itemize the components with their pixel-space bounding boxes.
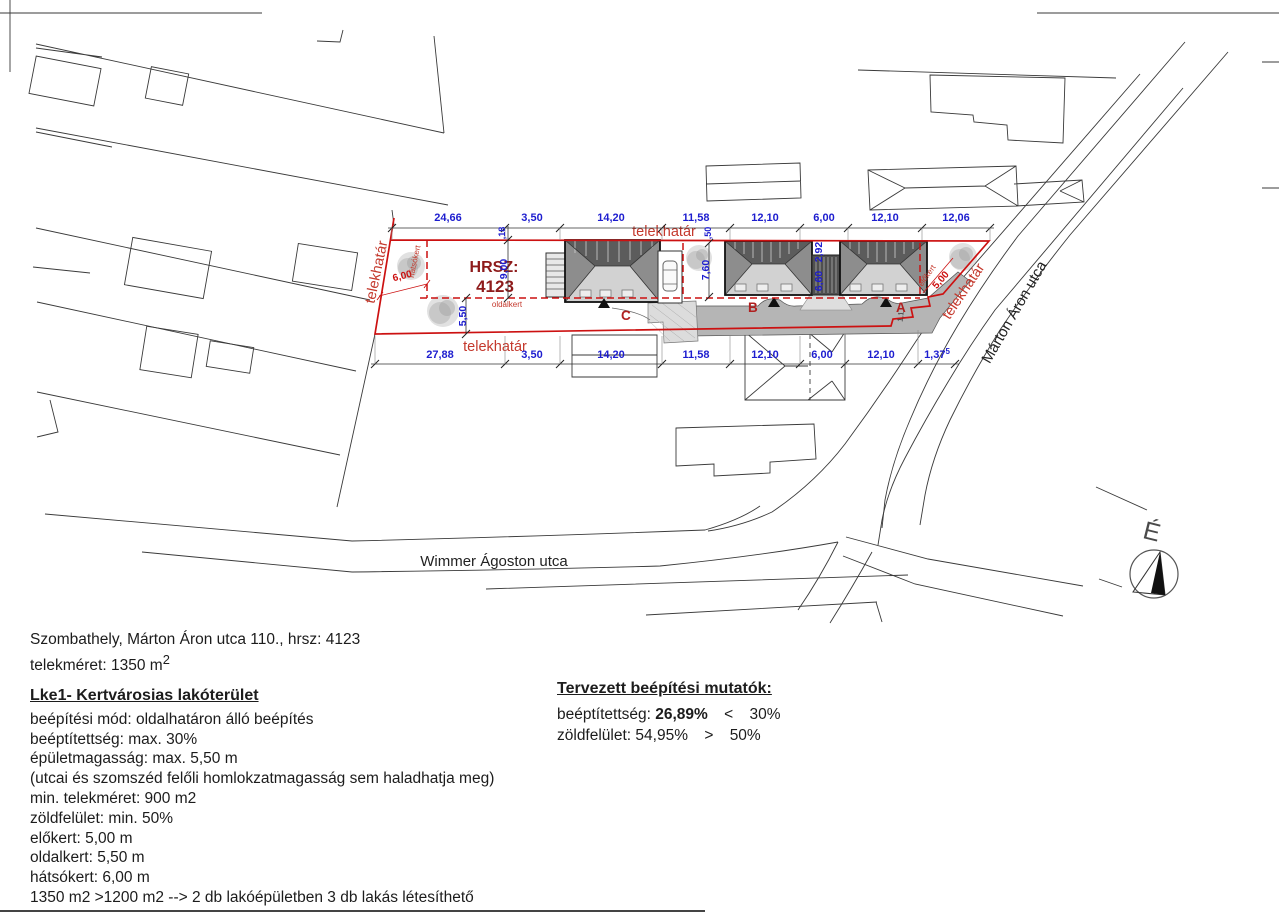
zoning-line: (utcai és szomszéd felőli homlokzatmagas…	[30, 769, 494, 789]
building-label-c: C	[621, 308, 631, 323]
svg-text:,50: ,50	[703, 227, 713, 240]
coverage-limit: 30%	[750, 706, 781, 723]
svg-text:3,50: 3,50	[521, 349, 542, 361]
building-label-b: B	[748, 300, 758, 315]
label-marton-utca: Márton Áron utca	[978, 258, 1051, 367]
svg-text:6,60: 6,60	[813, 271, 825, 292]
svg-text:14,20: 14,20	[597, 212, 625, 224]
label-telekhatar-bottom: telekhatár	[463, 339, 527, 355]
site-address: Szombathely, Márton Áron utca 110., hrsz…	[30, 630, 360, 650]
svg-text:5,50: 5,50	[457, 306, 469, 327]
north-label: É	[1140, 515, 1163, 547]
hrsz-label: HRSZ:	[470, 259, 519, 276]
indicators-heading: Tervezett beépítési mutatók:	[557, 678, 781, 700]
indicators-block: Tervezett beépítési mutatók: beéptítetts…	[557, 678, 781, 747]
zoning-heading: Lke1- Kertvárosias lakóterület	[30, 686, 494, 706]
svg-text:,18: ,18	[497, 227, 507, 240]
zoning-line: 1350 m2 >1200 m2 --> 2 db lakóépületben …	[30, 888, 494, 908]
svg-text:7,60: 7,60	[700, 260, 712, 281]
svg-text:9,00: 9,00	[498, 259, 510, 280]
svg-text:12,10: 12,10	[867, 349, 895, 361]
zoning-line: oldalkert: 5,50 m	[30, 848, 494, 868]
plot-size: telekméret: 1350 m2	[30, 650, 360, 676]
coverage-label: beéptítettség:	[557, 706, 651, 723]
site-info-block: Szombathely, Márton Áron utca 110., hrsz…	[30, 630, 360, 676]
green-row: zöldfelület: 54,95% > 50%	[557, 725, 781, 747]
svg-text:1,375: 1,375	[924, 347, 950, 361]
svg-text:12,10: 12,10	[871, 212, 899, 224]
building-label-a: A	[896, 300, 906, 315]
svg-text:6,00: 6,00	[813, 212, 834, 224]
green-label: zöldfelület:	[557, 727, 631, 744]
north-arrow: É	[1130, 515, 1178, 598]
svg-text:12,10: 12,10	[751, 212, 779, 224]
svg-text:27,88: 27,88	[426, 349, 454, 361]
svg-text:11,58: 11,58	[683, 212, 710, 224]
zoning-line: min. telekméret: 900 m2	[30, 789, 494, 809]
svg-text:2,92: 2,92	[813, 242, 825, 263]
building-a	[840, 241, 927, 295]
green-value: 54,95%	[635, 727, 688, 744]
label-telekhatar-left: telekhatár	[363, 239, 392, 305]
site-plan-page: 6,00 5,00 hátsókert oldalkert előkert 1,…	[0, 0, 1279, 921]
zoning-line: beéptítettség: max. 30%	[30, 730, 494, 750]
svg-text:3,50: 3,50	[521, 212, 542, 224]
coverage-row: beéptítettség: 26,89% < 30%	[557, 704, 781, 726]
label-wimmer-utca: Wimmer Ágoston utca	[420, 553, 568, 570]
building-c	[565, 240, 660, 302]
coverage-value: 26,89%	[655, 706, 708, 723]
zoning-line: épületmagasság: max. 5,50 m	[30, 749, 494, 769]
svg-text:12,10: 12,10	[751, 349, 779, 361]
zoning-line: előkert: 5,00 m	[30, 829, 494, 849]
green-operator: >	[704, 725, 713, 747]
svg-text:24,66: 24,66	[434, 212, 462, 224]
coverage-operator: <	[724, 704, 733, 726]
svg-text:14,20: 14,20	[597, 349, 625, 361]
buildings	[546, 240, 927, 308]
zoning-line: beépítési mód: oldalhatáron álló beépíté…	[30, 710, 494, 730]
zoning-line: zöldfelület: min. 50%	[30, 809, 494, 829]
green-limit: 50%	[730, 727, 761, 744]
zoning-line: hátsókert: 6,00 m	[30, 868, 494, 888]
street-lines	[45, 42, 1228, 623]
label-oldalkert: oldalkert	[492, 300, 523, 309]
zoning-block: Lke1- Kertvárosias lakóterület beépítési…	[30, 686, 494, 908]
svg-text:12,06: 12,06	[942, 212, 970, 224]
svg-text:11,58: 11,58	[683, 349, 710, 361]
building-b	[725, 241, 812, 295]
svg-text:6,00: 6,00	[811, 349, 832, 361]
tree	[427, 295, 459, 327]
